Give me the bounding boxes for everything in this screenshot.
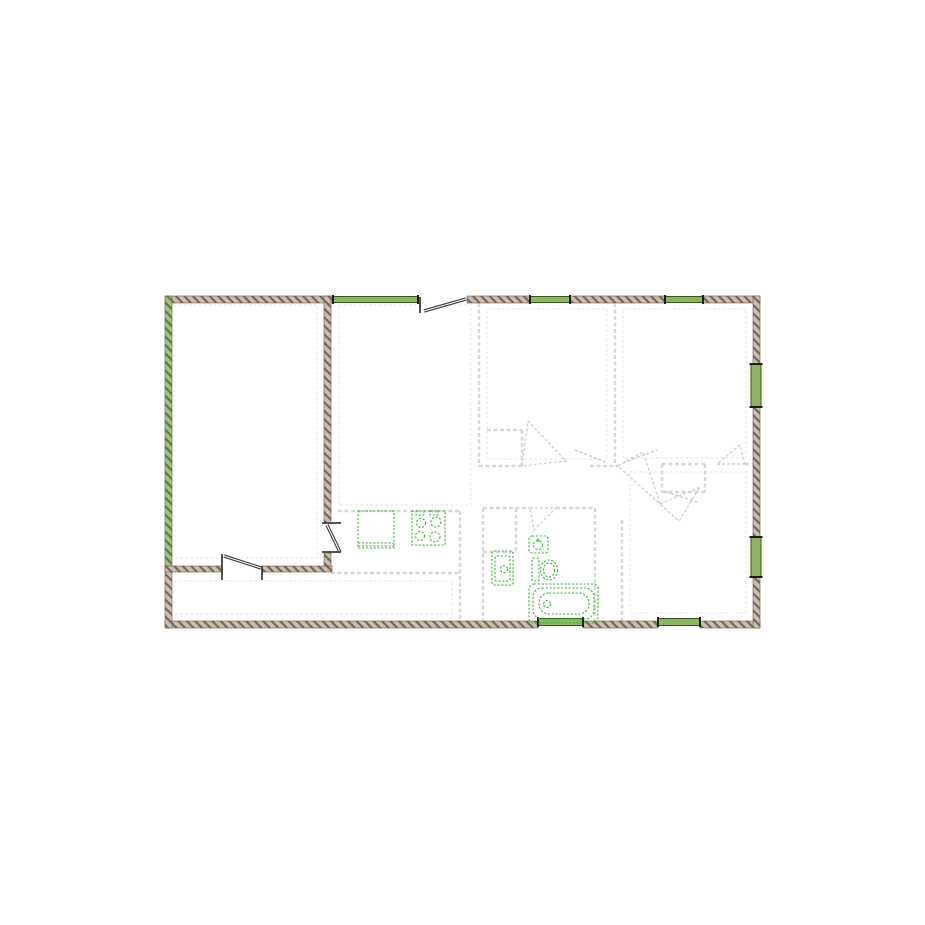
green-wall-segment xyxy=(165,296,172,568)
window-glass xyxy=(751,364,761,407)
window xyxy=(658,617,700,627)
kitchen-stove-part xyxy=(417,519,426,528)
room-inset xyxy=(174,305,317,558)
kitchen-stove xyxy=(412,511,445,545)
bathtub xyxy=(529,584,598,623)
wall-segment xyxy=(165,621,538,628)
floor-plan-page xyxy=(0,0,925,925)
door-swing xyxy=(618,452,660,504)
window xyxy=(750,364,763,407)
door-swing xyxy=(522,421,566,466)
wall-segment xyxy=(165,566,222,572)
interior-partitions xyxy=(331,303,753,621)
wall-segment xyxy=(753,577,760,628)
door-leaf xyxy=(326,525,341,553)
wall-segment xyxy=(583,621,658,628)
wall-segment xyxy=(324,553,331,567)
bathroom-basin-part xyxy=(501,566,508,573)
window-glass xyxy=(665,297,703,303)
door-leaf-light xyxy=(575,450,608,463)
wall-segment xyxy=(753,296,760,364)
window xyxy=(530,295,570,304)
room-inset xyxy=(623,309,746,458)
kitchen-stove-part xyxy=(431,517,441,527)
door-leaf-light xyxy=(666,492,697,502)
window-glass xyxy=(658,619,700,626)
wall-segment xyxy=(703,296,760,303)
wall-segment xyxy=(324,296,331,523)
kitchen-stove-part xyxy=(430,532,440,542)
kitchen-stove-part xyxy=(416,532,425,541)
bathroom-basin xyxy=(492,551,513,585)
corner-sink-part xyxy=(534,541,543,550)
room-inset xyxy=(174,581,452,614)
toilet-part xyxy=(544,563,555,577)
window xyxy=(333,295,418,304)
kitchen-counter xyxy=(358,511,394,548)
door-leaf xyxy=(224,555,262,569)
door-swing xyxy=(717,445,745,464)
wall-segment xyxy=(165,568,172,628)
interior-door-swings xyxy=(522,421,745,530)
wall-segment xyxy=(262,566,332,572)
wall-segment xyxy=(467,296,530,303)
room-inset xyxy=(487,309,607,459)
wall-segment xyxy=(165,296,333,303)
bathtub-part xyxy=(539,593,589,614)
floor-plan xyxy=(0,0,925,925)
wall-segment xyxy=(753,407,760,537)
kitchen-stove-part xyxy=(412,511,445,545)
window xyxy=(665,295,703,304)
wall-segment xyxy=(700,621,760,628)
windows xyxy=(333,295,763,627)
toilet xyxy=(532,558,558,581)
fixtures xyxy=(358,511,598,623)
corner-sink xyxy=(529,536,548,553)
doors xyxy=(222,297,466,580)
walls xyxy=(165,296,760,628)
bathtub-part xyxy=(544,601,551,608)
room-inset xyxy=(339,305,471,505)
door-swing xyxy=(530,508,556,530)
wall-segment xyxy=(570,296,665,303)
window-glass xyxy=(530,297,570,303)
window-glass xyxy=(751,537,761,577)
window-glass xyxy=(333,297,418,303)
door-leaf-light xyxy=(623,450,657,463)
toilet-part xyxy=(532,558,539,581)
room-inset-outlines xyxy=(174,305,746,614)
window xyxy=(750,537,763,577)
